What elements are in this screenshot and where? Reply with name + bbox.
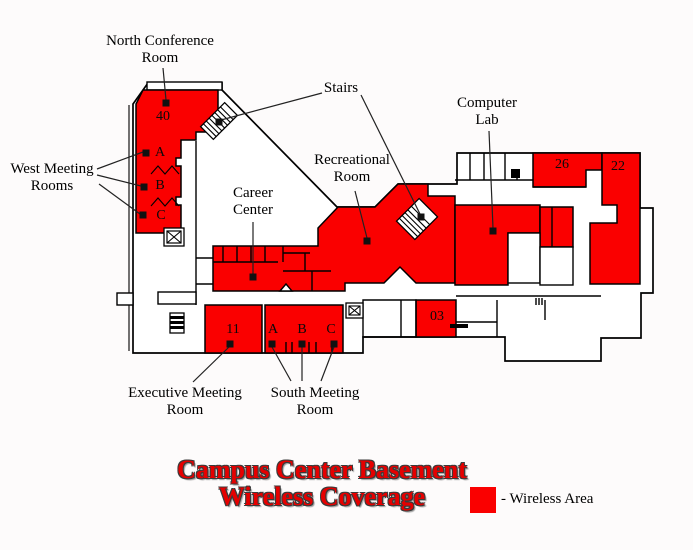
marker-room-11 (227, 341, 234, 348)
room-number-22: 22 (611, 159, 625, 175)
legend-wireless-swatch (470, 487, 496, 513)
room-letter-south-b: B (297, 322, 306, 338)
marker-south-a (269, 341, 276, 348)
map-title: Campus Center Basement Wireless Coverage (177, 456, 467, 511)
door-bar (450, 324, 468, 328)
room-number-40: 40 (156, 109, 170, 125)
wireless-area-mid-right (540, 207, 573, 247)
north-lintel (147, 82, 222, 90)
room-below-26 (540, 247, 573, 285)
storage-room-southwest-1 (158, 292, 196, 304)
label-career-center: Career Center (233, 185, 273, 219)
marker-stairs-central (418, 214, 425, 221)
marker-south-b (299, 341, 306, 348)
room-letter-west-c: C (156, 208, 165, 224)
legend-wireless-label: - Wireless Area (501, 491, 593, 508)
elevator-icon-west (164, 228, 184, 246)
stairs-icon-southwest (170, 313, 184, 333)
room-letter-south-a: A (268, 322, 278, 338)
marker-south-c (331, 341, 338, 348)
marker-recreational (364, 238, 371, 245)
label-executive-meeting-room: Executive Meeting Room (128, 385, 242, 419)
room-number-11: 11 (226, 322, 239, 338)
room-letter-west-a: A (155, 145, 165, 161)
room-letter-west-b: B (155, 178, 164, 194)
room-letter-south-c: C (326, 322, 335, 338)
marker-west-b (141, 184, 148, 191)
room-number-26: 26 (555, 157, 569, 173)
marker-career (250, 274, 257, 281)
campus-basement-map: North Conference Room West Meeting Rooms… (0, 0, 693, 550)
marker-room-40 (163, 100, 170, 107)
label-recreational-room: Recreational Room (314, 152, 390, 186)
label-west-meeting-rooms: West Meeting Rooms (10, 161, 93, 195)
label-south-meeting-room: South Meeting Room (271, 385, 360, 419)
riser-box (511, 169, 520, 178)
label-north-conference-room: North Conference Room (106, 33, 214, 67)
storage-room-southwest-2 (117, 293, 133, 305)
marker-stairs-northwest (216, 119, 223, 126)
marker-computer-lab (490, 228, 497, 235)
label-stairs: Stairs (324, 80, 358, 97)
room-right-of-computer-lab (508, 233, 540, 283)
marker-west-c (140, 212, 147, 219)
marker-west-a (143, 150, 150, 157)
label-computer-lab: Computer Lab (457, 95, 517, 129)
elevator-icon-central (346, 303, 363, 318)
room-number-03: 03 (430, 309, 444, 325)
